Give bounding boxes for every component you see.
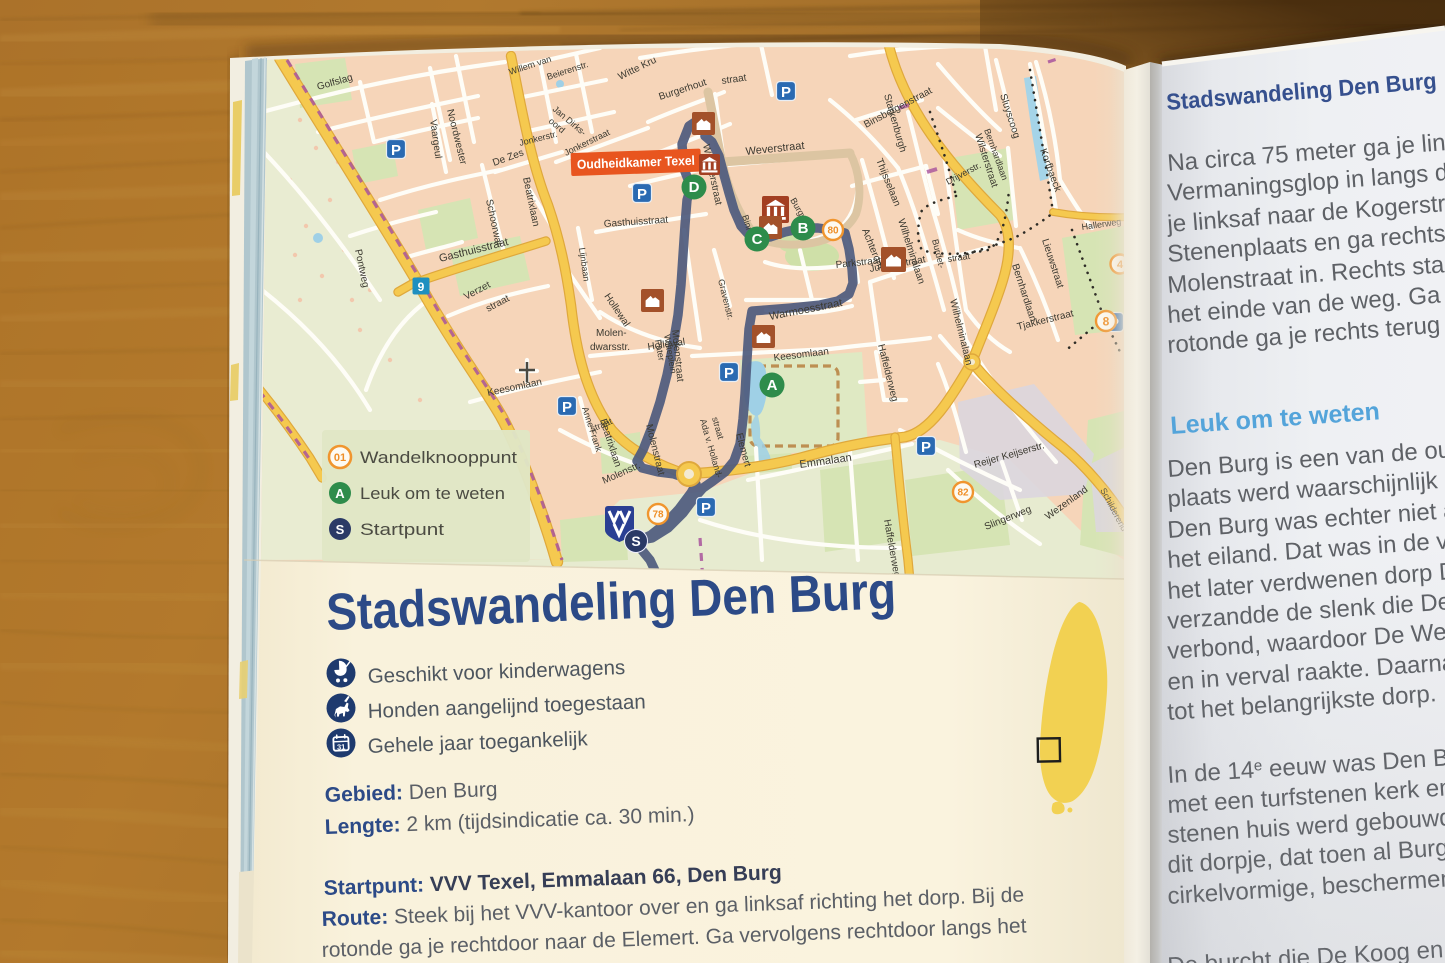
svg-text:Startpunt: Startpunt (360, 520, 444, 539)
svg-text:9: 9 (418, 280, 425, 294)
svg-text:Molen-: Molen- (596, 328, 627, 339)
svg-text:A: A (767, 377, 778, 394)
svg-text:82: 82 (957, 488, 969, 499)
svg-text:S: S (631, 533, 640, 549)
svg-text:Leuk om te weten: Leuk om te weten (360, 484, 505, 503)
svg-text:S: S (336, 522, 345, 537)
svg-text:01: 01 (334, 452, 346, 464)
svg-text:P: P (921, 439, 931, 456)
svg-text:78: 78 (652, 510, 664, 521)
svg-text:P: P (701, 500, 711, 517)
svg-text:P: P (724, 365, 734, 382)
svg-text:P: P (781, 84, 791, 101)
svg-text:P: P (637, 186, 647, 203)
svg-text:D: D (689, 179, 700, 196)
svg-text:80: 80 (827, 226, 839, 237)
svg-text:Wandelknooppunt: Wandelknooppunt (360, 448, 517, 467)
svg-text:A: A (335, 486, 345, 501)
svg-text:B: B (798, 220, 809, 237)
svg-text:31: 31 (337, 742, 346, 751)
svg-text:P: P (562, 399, 572, 416)
svg-text:dwarsstr.: dwarsstr. (590, 342, 630, 353)
svg-text:C: C (752, 231, 763, 248)
svg-text:P: P (391, 142, 401, 159)
